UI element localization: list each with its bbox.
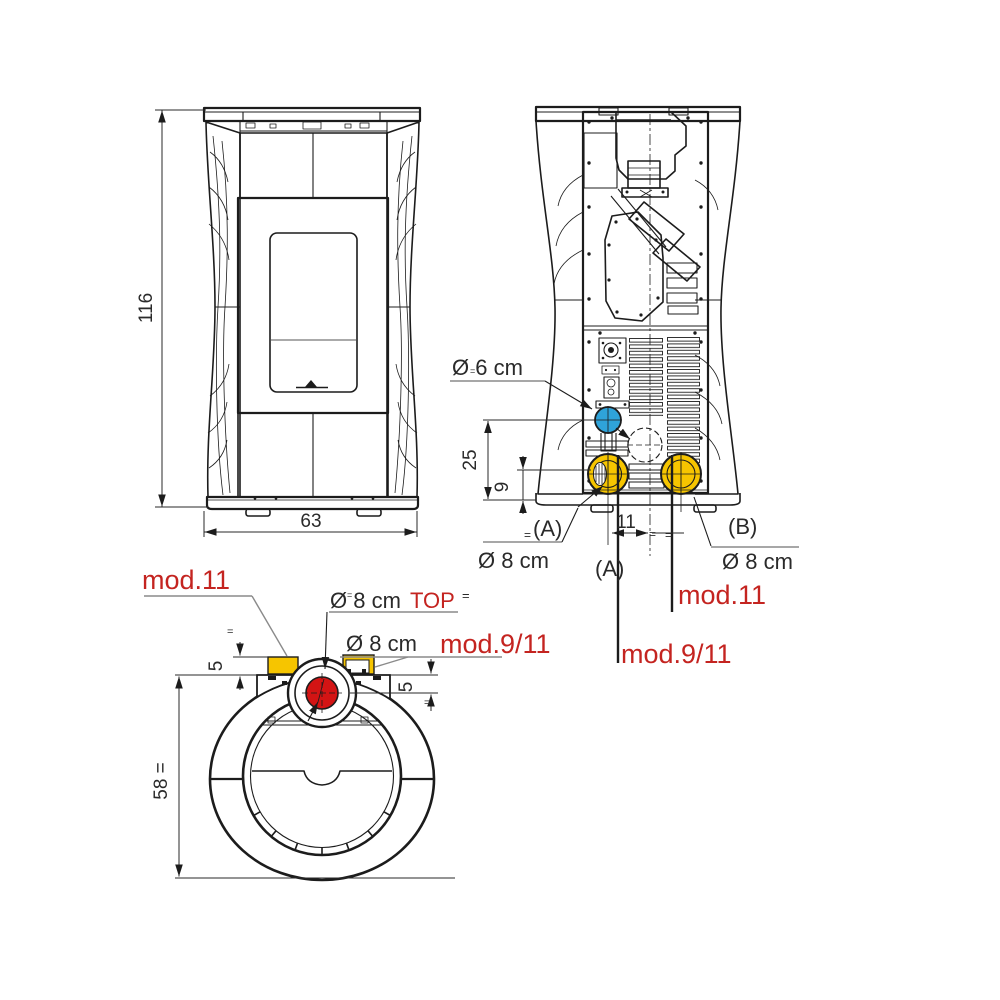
- top-flue-tag: TOP: [410, 588, 455, 613]
- equal-mark: =: [649, 527, 656, 541]
- front-height-dimension: 116: [136, 293, 157, 323]
- equal-mark: =: [665, 528, 672, 542]
- rear-grille-right: [667, 337, 700, 468]
- front-width-dimension: 63: [300, 511, 321, 532]
- offset-right-dimension: 5: [396, 682, 417, 693]
- outlet-a-diameter-label: Ø 8 cm: [478, 548, 549, 573]
- equal-mark: =: [347, 590, 352, 600]
- flue-height-dimension: 9: [492, 482, 513, 493]
- rear-mod911-label: mod.9/11: [621, 639, 732, 669]
- equal-mark: =: [424, 697, 430, 709]
- outlet-a-tag: (A): [533, 516, 562, 541]
- technical-drawing-page: 116 63: [0, 0, 1000, 1000]
- outlet-b-diameter-label: Ø 8 cm: [722, 549, 793, 574]
- rear-grille-left: [629, 338, 663, 416]
- outlet-a-tag-below: (A): [595, 556, 624, 581]
- rear-flue-diameter-label: Ø 8 cm: [346, 631, 417, 656]
- intake-height-dimension: 25: [460, 449, 481, 470]
- equal-mark: =: [227, 626, 233, 638]
- equal-mark: =: [524, 528, 531, 542]
- rear-mod11-label: mod.11: [678, 580, 766, 610]
- outlet-b-tag: (B): [728, 514, 757, 539]
- offset-left-dimension: 5: [206, 661, 227, 672]
- top-mod911-label: mod.9/11: [440, 629, 551, 659]
- equal-mark: =: [462, 588, 470, 603]
- top-mod11-label: mod.11: [142, 565, 230, 595]
- depth-dimension: 58 =: [151, 762, 172, 800]
- stove-dimension-drawing: 116 63: [0, 0, 1000, 1000]
- flue-offset-dimension: 11: [616, 512, 636, 533]
- equal-mark: =: [470, 366, 475, 376]
- top-flue-diameter-label: Ø 8 cm: [330, 588, 401, 613]
- air-intake-diameter-label: Ø 6 cm: [452, 355, 523, 380]
- top-outlet-mod11: [268, 657, 298, 674]
